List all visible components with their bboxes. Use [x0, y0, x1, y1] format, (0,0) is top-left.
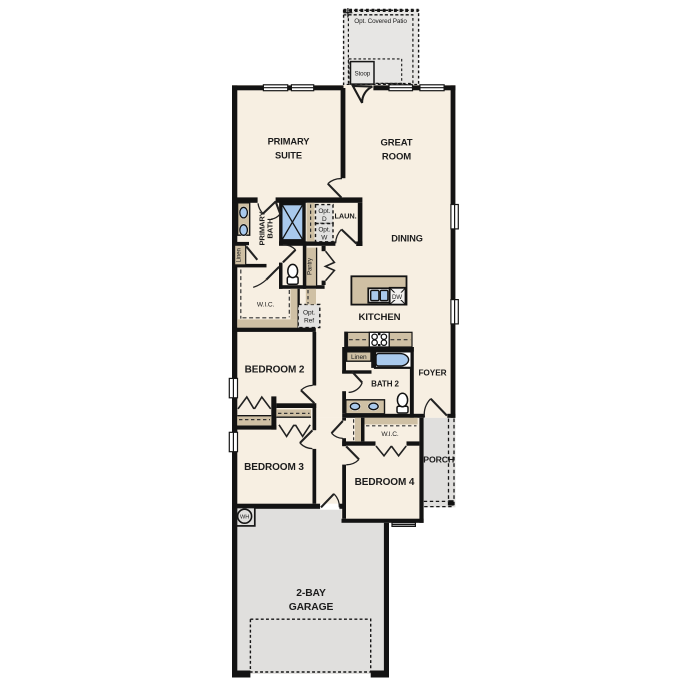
svg-text:Opt.: Opt.	[303, 309, 315, 316]
svg-text:BEDROOM 2: BEDROOM 2	[245, 365, 305, 376]
svg-text:Linen: Linen	[351, 354, 367, 361]
svg-text:W: W	[321, 235, 328, 242]
svg-text:BEDROOM 3: BEDROOM 3	[244, 462, 304, 473]
svg-text:BEDROOM 4: BEDROOM 4	[355, 477, 415, 488]
svg-text:LAUN.: LAUN.	[334, 211, 356, 220]
svg-text:BATH: BATH	[266, 218, 275, 238]
svg-text:DINING: DINING	[391, 234, 423, 244]
svg-text:WH: WH	[240, 514, 249, 520]
svg-text:Pantry: Pantry	[307, 257, 314, 275]
svg-text:GARAGE: GARAGE	[289, 602, 334, 613]
svg-text:PORCH: PORCH	[423, 455, 454, 465]
svg-text:Opt.: Opt.	[318, 227, 330, 234]
svg-text:D: D	[322, 216, 327, 223]
svg-text:W.I.C.: W.I.C.	[257, 301, 275, 308]
svg-text:KITCHEN: KITCHEN	[359, 312, 401, 323]
svg-text:BATH 2: BATH 2	[371, 380, 399, 389]
svg-text:ROOM: ROOM	[382, 152, 411, 163]
svg-text:Ref: Ref	[304, 318, 314, 325]
svg-text:Stoop: Stoop	[354, 71, 370, 78]
svg-text:Opt. Covered Patio: Opt. Covered Patio	[354, 18, 407, 25]
svg-text:W.I.C.: W.I.C.	[381, 431, 399, 438]
svg-text:DW: DW	[392, 294, 402, 301]
svg-text:PRIMARY: PRIMARY	[268, 137, 311, 147]
svg-text:GREAT: GREAT	[380, 138, 412, 149]
svg-text:2-BAY: 2-BAY	[296, 588, 326, 599]
svg-text:SUITE: SUITE	[275, 151, 302, 161]
svg-text:Linen: Linen	[237, 248, 243, 262]
svg-text:Opt.: Opt.	[318, 208, 330, 215]
svg-text:FOYER: FOYER	[418, 368, 446, 378]
